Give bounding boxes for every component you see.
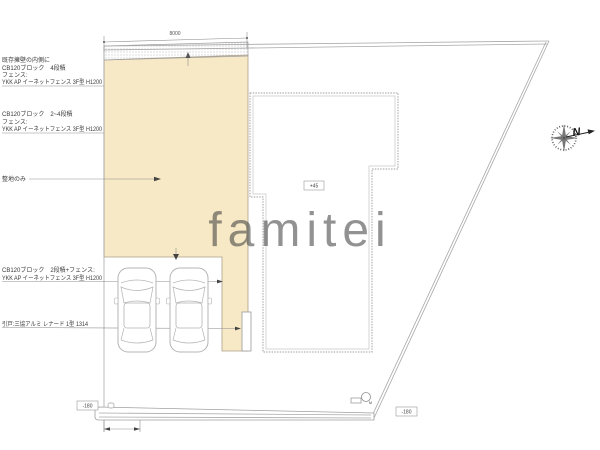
utility-label: M <box>369 401 372 405</box>
annotation-line: 引戸:三協アルミ レナード 1型 1314 <box>2 320 89 328</box>
annotation-wall-fence-top: 既存擁壁の内側に CB120ブロック 4段積 フェンス: YKK AP イーネッ… <box>2 56 104 86</box>
dimension-top-value: 8000 <box>169 31 180 37</box>
utility-marker: M <box>351 393 372 406</box>
svg-text:-180: -180 <box>82 404 92 410</box>
dimension-bottom-left <box>104 420 140 432</box>
compass-icon: N <box>550 124 595 152</box>
car-2 <box>167 268 212 352</box>
site-plan-drawing: famitei 8000 既存擁壁の内側に CB120ブロック 4段積 フェンス… <box>0 0 600 450</box>
annotation-line: YKK AP イーネットフェンス 3F型 H1200 <box>2 274 103 282</box>
car-1 <box>115 268 160 352</box>
sliding-gate <box>242 312 251 351</box>
annotation-line: フェンス: <box>2 119 28 126</box>
annotation-line: 整地のみ <box>2 175 26 183</box>
annotation-line: YKK AP イーネットフェンス 3F型 H1200 <box>2 125 103 133</box>
annotation-fence-left: CB120ブロック 2~4段積 フェンス: YKK AP イーネットフェンス 3… <box>2 110 104 133</box>
level-label-building: +45 <box>304 181 324 190</box>
level-label-road-right: -180 <box>396 407 417 416</box>
annotation-line: CB120ブロック 2~4段積 <box>2 110 73 118</box>
annotation-line: YKK AP イーネットフェンス 3F型 H1200 <box>2 78 103 86</box>
svg-text:-180: -180 <box>401 410 411 416</box>
annotation-line: 既存擁壁の内側に <box>2 56 50 64</box>
site-plan-page: famitei 8000 既存擁壁の内側に CB120ブロック 4段積 フェンス… <box>0 0 600 450</box>
annotation-line: CB120ブロック 2段積+フェンス: <box>2 266 95 274</box>
north-label: N <box>572 126 583 139</box>
level-label-road-left: -180 <box>77 401 98 410</box>
annotation-line: フェンス: <box>2 72 28 79</box>
svg-text:+45: +45 <box>310 184 319 190</box>
bottom-wall-band <box>95 403 374 420</box>
watermark: famitei <box>208 204 391 257</box>
annotation-line: CB120ブロック 4段積 <box>2 64 66 72</box>
